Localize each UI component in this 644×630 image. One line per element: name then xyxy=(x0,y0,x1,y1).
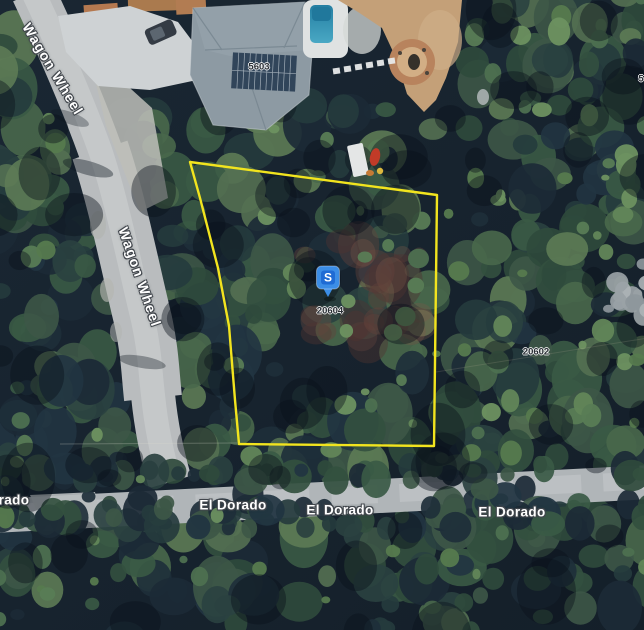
solar-panels xyxy=(231,52,297,91)
pool-cover xyxy=(312,7,331,21)
road-shoulder-rocks xyxy=(100,278,114,302)
road-shoulder-rocks xyxy=(110,322,122,342)
marker-shadow xyxy=(324,297,336,302)
yard-object-yellow xyxy=(377,168,383,174)
yard-object-orange xyxy=(366,170,374,176)
satellite-map[interactable]: S Wagon WheelWagon WheelradoEl DoradoEl … xyxy=(0,0,644,630)
fire-pit xyxy=(408,54,420,70)
marker-letter: S xyxy=(324,271,332,285)
clearing-spot xyxy=(477,89,489,105)
patio-chair xyxy=(422,48,426,52)
patio-chair xyxy=(425,71,429,75)
patio-chair xyxy=(398,51,402,55)
